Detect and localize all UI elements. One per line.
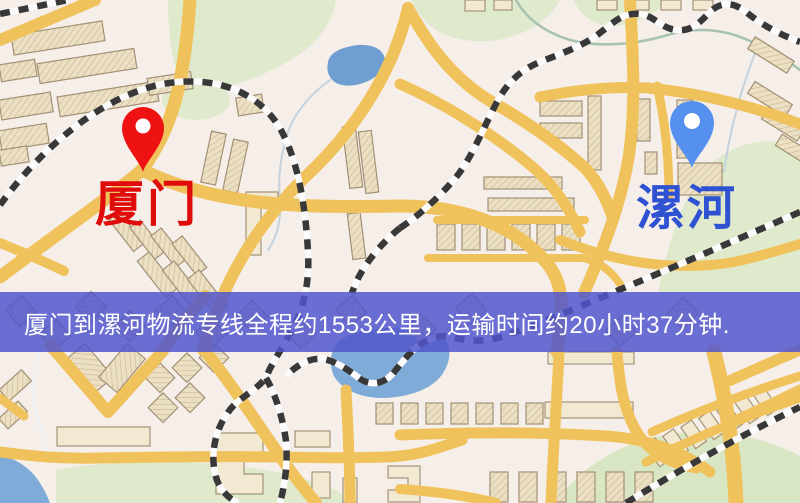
origin-label: 厦门: [95, 177, 199, 232]
road: [346, 390, 350, 503]
route-info-banner: 厦门到漯河物流专线全程约1553公里，运输时间约20小时37分钟.: [0, 292, 800, 352]
route-info-text: 厦门到漯河物流专线全程约1553公里，运输时间约20小时37分钟.: [24, 305, 730, 340]
map-screenshot: 厦门 漯河 厦门到漯河物流专线全程约1553公里，运输时间约20小时37分钟.: [0, 0, 800, 503]
destination-pin-hole: [684, 113, 700, 129]
map-canvas: 厦门 漯河: [0, 0, 800, 503]
origin-pin-hole: [136, 119, 151, 134]
destination-label: 漯河: [636, 182, 738, 235]
